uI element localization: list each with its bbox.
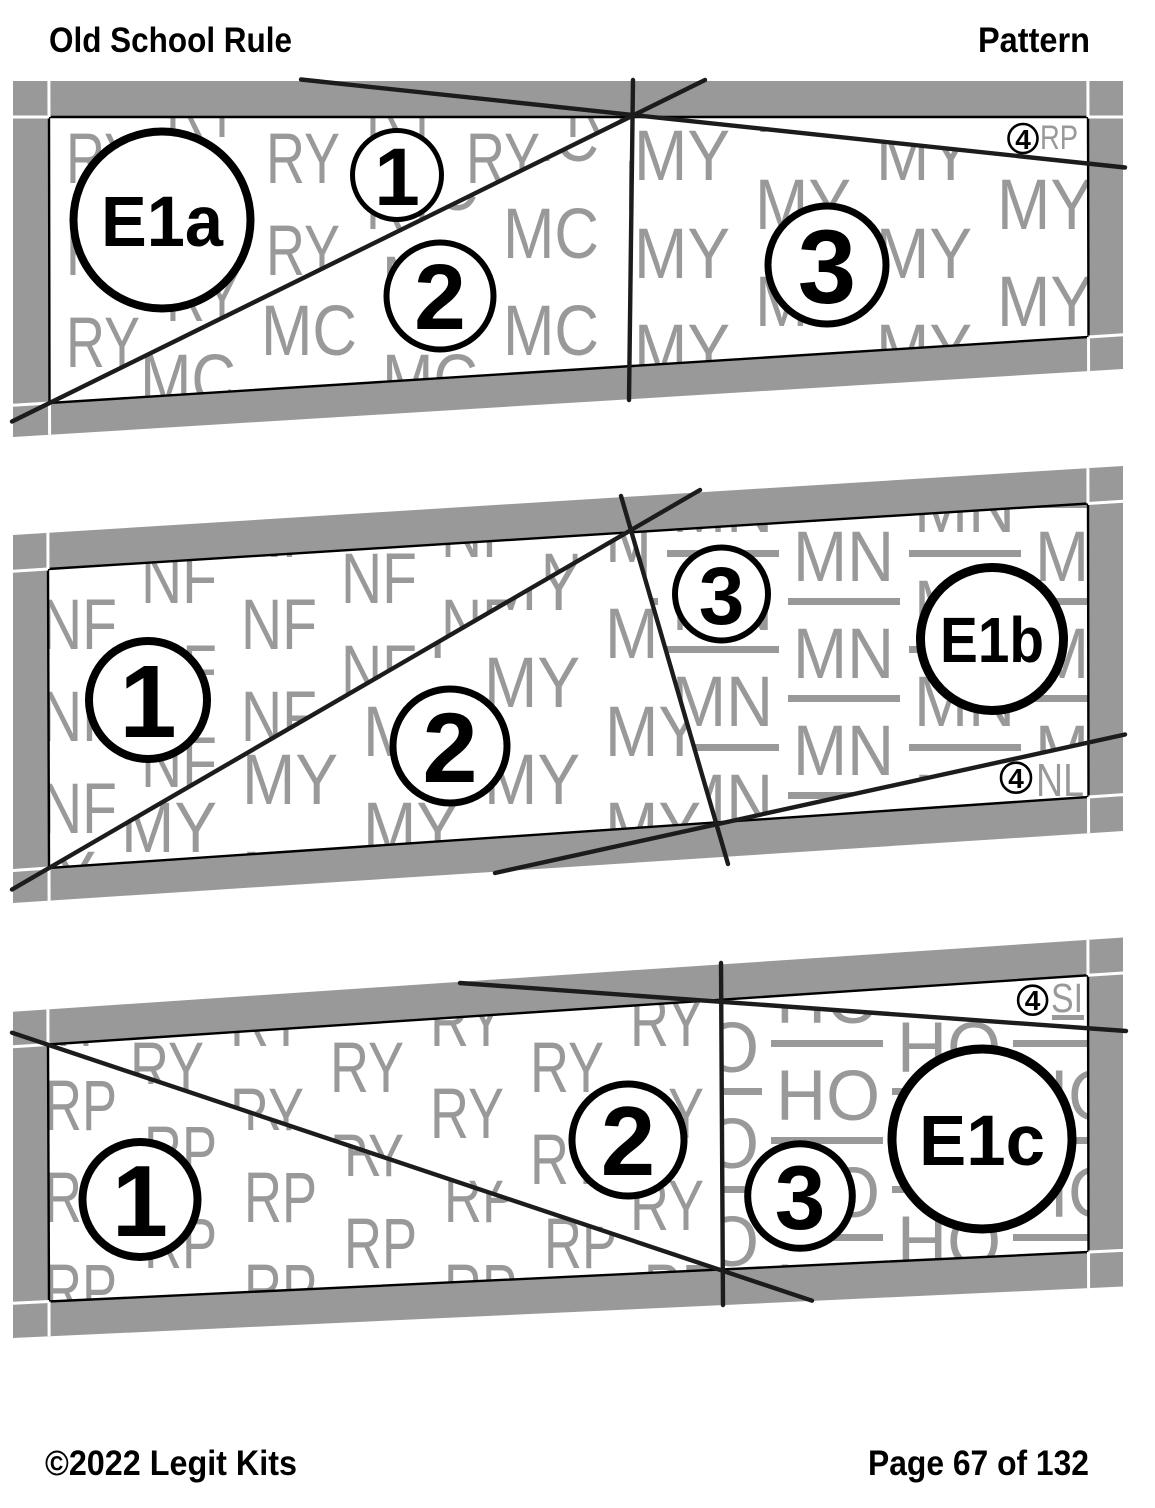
svg-text:NF: NF [41, 586, 117, 665]
svg-text:4: 4 [1008, 763, 1024, 794]
svg-text:MN: MN [793, 518, 894, 597]
svg-text:3: 3 [699, 551, 745, 642]
svg-text:RY: RY [430, 1075, 504, 1154]
svg-text:MC: MC [503, 292, 599, 371]
svg-text:E1a: E1a [101, 183, 223, 262]
svg-text:NF: NF [241, 586, 317, 665]
svg-text:Pattern: Pattern [978, 21, 1090, 60]
svg-text:Old School Rule: Old School Rule [49, 21, 292, 60]
svg-text:E1b: E1b [940, 604, 1044, 676]
svg-text:MY: MY [997, 263, 1093, 342]
svg-text:4: 4 [1025, 985, 1041, 1016]
svg-text:NL: NL [1036, 754, 1084, 806]
svg-text:RP: RP [44, 1067, 117, 1146]
svg-text:1: 1 [119, 644, 176, 759]
svg-text:1: 1 [374, 132, 420, 223]
svg-text:©2022 Legit Kits: ©2022 Legit Kits [45, 1444, 297, 1483]
svg-text:3: 3 [798, 209, 856, 326]
svg-text:MY: MY [634, 117, 730, 196]
svg-text:Page 67 of 132: Page 67 of 132 [868, 1444, 1089, 1483]
svg-text:RY: RY [266, 120, 340, 199]
svg-text:E1c: E1c [919, 1102, 1045, 1181]
svg-text:2: 2 [601, 1086, 656, 1196]
svg-text:MY: MY [997, 166, 1093, 245]
svg-text:1: 1 [112, 1146, 168, 1258]
svg-text:RP: RP [344, 1205, 417, 1284]
svg-text:2: 2 [422, 692, 477, 803]
svg-text:SI: SI [1051, 975, 1083, 1021]
svg-text:NF: NF [341, 540, 417, 619]
svg-text:MC: MC [261, 292, 357, 371]
svg-text:MY: MY [242, 741, 338, 820]
svg-text:RP: RP [1040, 119, 1078, 157]
svg-text:MY: MY [634, 215, 730, 294]
svg-text:HO: HO [776, 1057, 880, 1136]
svg-text:MN: MN [793, 712, 894, 791]
svg-text:2: 2 [414, 245, 466, 349]
svg-text:MY: MY [876, 215, 972, 294]
svg-text:3: 3 [775, 1148, 826, 1249]
svg-text:RY: RY [330, 1029, 404, 1108]
svg-text:MC: MC [503, 195, 599, 274]
svg-text:4: 4 [1015, 124, 1031, 155]
svg-text:MN: MN [793, 615, 894, 694]
svg-text:RP: RP [244, 1159, 317, 1238]
